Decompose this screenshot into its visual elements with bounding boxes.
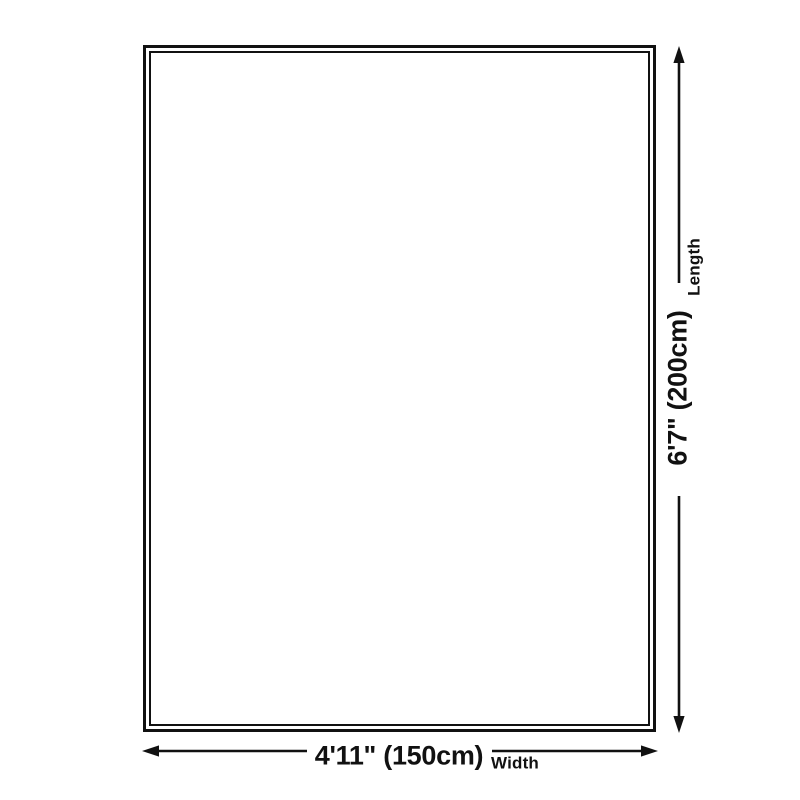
length-value: 6'7" (200cm) (665, 310, 692, 465)
arrow-up-icon (673, 46, 684, 63)
dimension-diagram: 6'7" (200cm) Length 4'11" (150cm) Width (0, 0, 800, 800)
arrow-down-icon (673, 716, 684, 733)
arrow-right-icon (641, 745, 658, 756)
length-label: Length (686, 238, 703, 296)
width-value: 4'11" (150cm) (315, 743, 483, 770)
width-label: Width (491, 755, 539, 772)
arrow-left-icon (142, 745, 159, 756)
